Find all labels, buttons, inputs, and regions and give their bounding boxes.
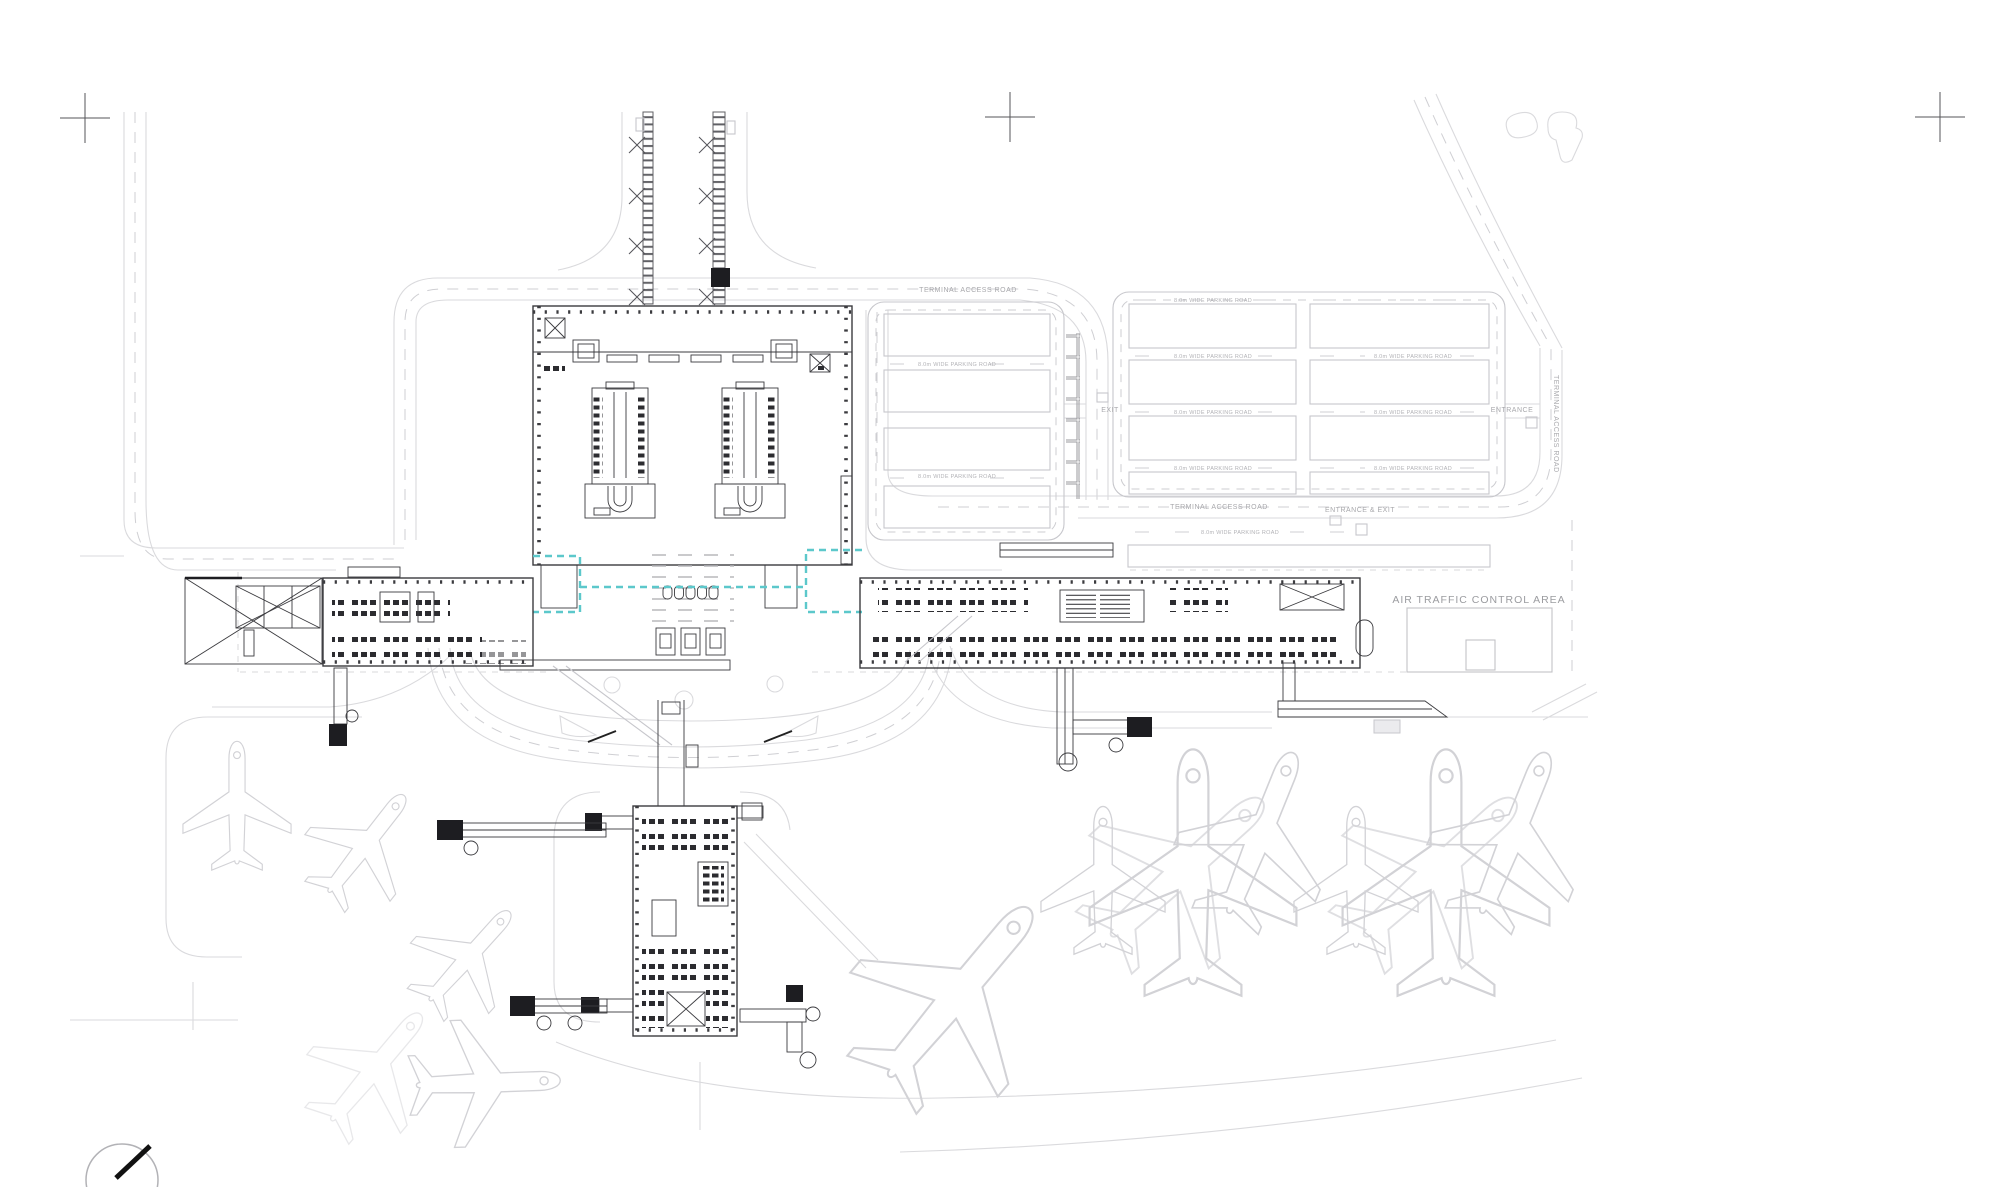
aircraft-outline [1408,724,1617,949]
parking-lot-east: 8.0m WIDE PARKING ROAD 8.0m WIDE PARKING… [1097,292,1537,497]
mast-markers [629,137,715,305]
checkin-island [585,382,655,518]
landscape-features [1506,112,1582,162]
aircraft-outline [1155,724,1364,949]
moving-walkway [500,660,730,670]
seating-rows [332,634,482,660]
parked-aircraft [183,724,1617,1165]
escalator-bank [541,565,577,608]
jet-bridges-west [329,668,607,1030]
crosshair-icon [985,92,1035,142]
seating-rows [332,590,450,616]
elevator-bank [656,628,725,655]
seating-rows [642,944,728,984]
aircraft-outline [1294,806,1418,954]
vehicle-icon [727,121,735,134]
entrance-exit-label: ENTRANCE & EXIT [1325,507,1395,514]
curbside-parking-strip: 8.0m WIDE PARKING ROAD [1000,530,1490,570]
entrance-label: ENTRANCE [1491,407,1534,414]
parking-road-label: 8.0m WIDE PARKING ROAD [1374,466,1452,472]
aircraft-outline [282,762,446,930]
terminal-access-road-label: TERMINAL ACCESS ROAD [919,287,1017,294]
stair-core [545,318,830,372]
jet-bridges-east [1057,663,1447,771]
terminal-main-hall [533,306,862,655]
terminal-access-road-label: TERMINAL ACCESS ROAD [1170,504,1268,511]
site-plan-canvas: 8.0m WIDE PARKING ROAD 8.0m WIDE PARKING… [0,0,2000,1187]
stair-core [652,900,676,936]
crosshair-icon [60,93,110,143]
parking-road-label: 8.0m WIDE PARKING ROAD [1374,354,1452,360]
station-block [711,268,730,287]
apm-guideway [558,112,816,305]
exit-sign-icon [1097,393,1108,402]
aircraft-outline [1297,734,1575,1009]
parking-road-label: 8.0m WIDE PARKING ROAD [1174,354,1252,360]
terminal-access-road-label-vertical: TERMINAL ACCESS ROAD [1552,375,1559,473]
parking-rows [884,314,1050,356]
sign-icon [1356,524,1367,535]
seating-rows [878,588,1028,612]
entrance-sign-icon [1526,417,1537,428]
parking-road-label: 8.0m WIDE PARKING ROAD [918,362,996,368]
aircraft-outline [183,741,291,870]
north-arrow [86,1144,158,1187]
aircraft-outline [280,975,467,1165]
service-building [1374,720,1400,733]
aircraft-outline [1044,734,1322,1009]
registration-crosses [60,92,1965,143]
seating-rows [1168,588,1228,612]
core-gap [664,990,706,1028]
parking-road-label: 8.0m WIDE PARKING ROAD [1374,410,1452,416]
bus-bays [1066,333,1080,499]
parking-road-label: 8.0m WIDE PARKING ROAD [1174,410,1252,416]
parking-road-label: 8.0m WIDE PARKING ROAD [1201,530,1279,536]
west-annex-building [185,578,322,664]
kiosk-cluster [815,356,829,370]
aircraft-outline [1343,749,1550,995]
concourse-east [860,578,1373,668]
escalator-bank [765,565,797,608]
exit-label: EXIT [1101,407,1119,414]
parking-rows [884,370,1050,412]
seating-rows [642,816,728,860]
parking-rows [884,428,1050,470]
parking-road-label: 8.0m WIDE PARKING ROAD [918,474,996,480]
checkin-island [715,382,785,518]
parking-road-label: 8.0m WIDE PARKING ROAD [1174,298,1252,304]
walkway-bridge [348,567,400,577]
site-plan-sheet: 8.0m WIDE PARKING ROAD 8.0m WIDE PARKING… [0,0,2000,1187]
aircraft-outline [1090,749,1297,995]
atc-area-label: AIR TRAFFIC CONTROL AREA [1392,594,1565,606]
kiosk-cluster [541,357,565,377]
aircraft-outline [407,1017,563,1149]
atc-building [1466,640,1495,670]
road-network [70,94,1597,1152]
north-arrow-needle [116,1146,150,1178]
seating-rows [870,636,1340,662]
aircraft-outline [1041,806,1165,954]
atc-area: AIR TRAFFIC CONTROL AREA [1392,594,1565,672]
parking-lot-west: 8.0m WIDE PARKING ROAD 8.0m WIDE PARKING… [868,302,1080,540]
sign-icon [1330,516,1341,525]
crosshair-icon [1915,92,1965,142]
parking-road-label: 8.0m WIDE PARKING ROAD [1174,466,1252,472]
east-end-cap [1356,620,1373,656]
aircraft-outline [808,847,1103,1147]
service-desks [607,355,763,362]
